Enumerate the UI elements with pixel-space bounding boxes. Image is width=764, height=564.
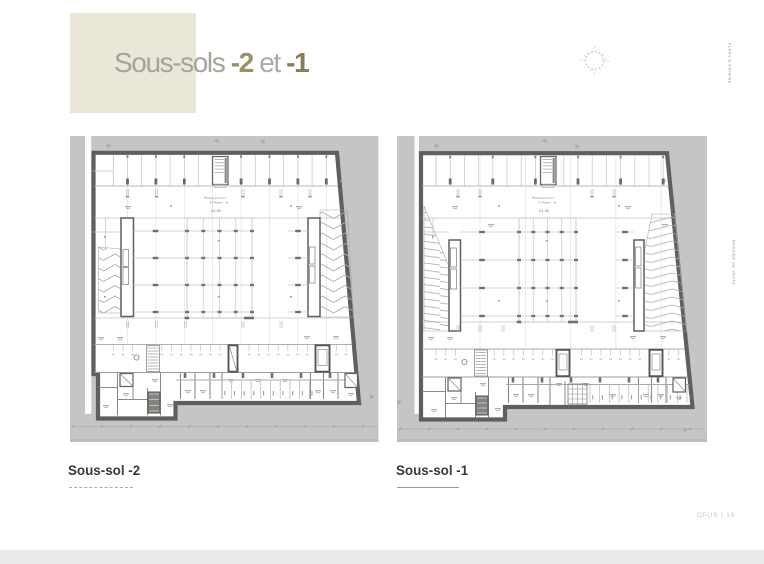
svg-text:Parking Privés: Parking Privés	[206, 196, 226, 200]
svg-text:24-00: 24-00	[211, 208, 222, 213]
svg-text:Parking Privés: Parking Privés	[534, 196, 554, 200]
svg-text:94 Places: 94 Places	[209, 201, 223, 205]
svg-text:72 Places: 72 Places	[537, 201, 551, 205]
svg-text:21-40: 21-40	[539, 208, 550, 213]
